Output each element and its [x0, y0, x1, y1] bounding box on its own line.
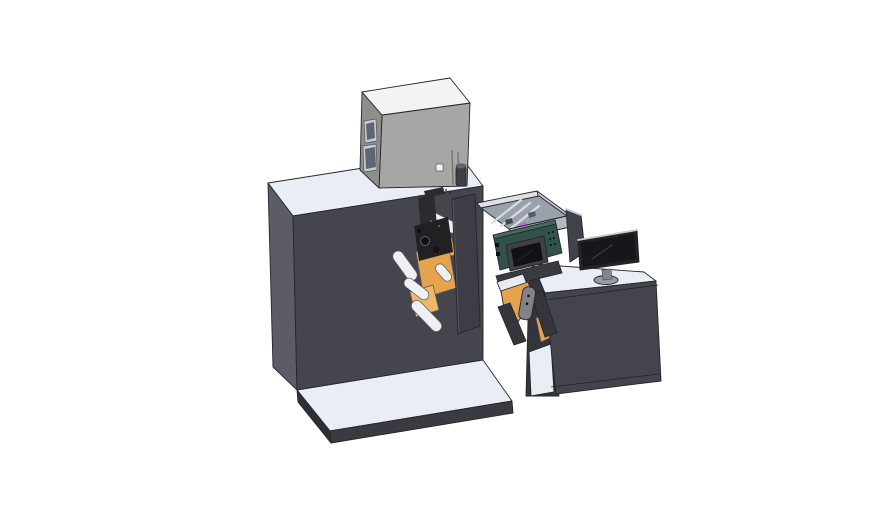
- screw-mark: [445, 189, 447, 191]
- hmi-dot: [554, 243, 556, 245]
- hmi-dot: [550, 244, 552, 246]
- box-window-glass-1: [366, 122, 375, 140]
- screw-mark: [419, 195, 421, 197]
- desk-inner-shelf: [529, 344, 554, 396]
- box-label-plate: [436, 164, 443, 171]
- hmi-dot: [552, 231, 554, 233]
- gear-hub-tiny: [417, 229, 421, 233]
- gear-hub-small: [433, 247, 439, 253]
- filter-cylinder: [456, 166, 466, 186]
- hmi-side-button: [495, 243, 499, 247]
- hmi-side-button: [496, 252, 500, 256]
- filter-cylinder-cap: [456, 164, 466, 168]
- mechanism-detail-dot: [438, 225, 440, 227]
- mechanism-detail-dot: [430, 220, 432, 222]
- top-equipment-box: [360, 78, 470, 188]
- cad-viewport: [0, 0, 888, 522]
- box-window-glass-2: [365, 147, 376, 169]
- hmi-dot: [549, 238, 551, 240]
- monitor-stand-neck: [602, 269, 612, 280]
- cad-render: [0, 0, 888, 522]
- hmi-dot: [553, 237, 555, 239]
- hmi-dot: [548, 232, 550, 234]
- gear-hub-large: [421, 237, 430, 246]
- box-vent-line: [452, 151, 453, 184]
- screw-mark: [449, 192, 451, 194]
